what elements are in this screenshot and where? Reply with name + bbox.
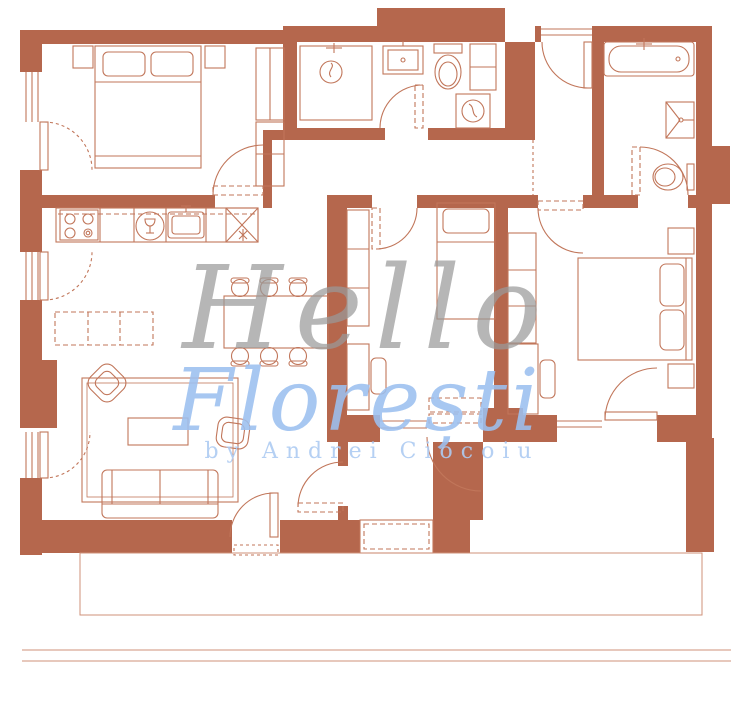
door-icon	[380, 85, 423, 128]
shower-icon	[300, 46, 372, 120]
entry-hall	[360, 520, 433, 553]
door-swing-arc	[44, 122, 92, 170]
fridge-icon	[226, 208, 258, 242]
kitchen	[56, 206, 258, 242]
nightstand-icon	[73, 46, 93, 68]
terrace	[22, 553, 731, 661]
watermark-byline: by Andrei Ciocoiu	[204, 439, 539, 464]
pillow	[151, 52, 193, 76]
sofa-icon	[102, 470, 218, 518]
window-icon	[26, 432, 90, 478]
dishwasher-icon	[136, 212, 164, 240]
bathtub-icon	[604, 38, 694, 76]
terrace-door	[605, 368, 657, 420]
door-icon	[298, 462, 343, 512]
window-icon	[26, 72, 92, 170]
washing-machine-icon	[456, 94, 490, 128]
nightstand-icon	[668, 228, 694, 254]
bathroom-1	[300, 41, 496, 128]
pillow	[443, 209, 489, 233]
washbasin-icon	[383, 41, 423, 74]
window-icon	[26, 252, 92, 300]
nightstand-icon	[668, 364, 694, 388]
pillow	[660, 310, 684, 350]
window-icon	[557, 421, 602, 427]
entrance-threshold	[360, 520, 433, 553]
watermark-line2: Florești	[171, 351, 542, 451]
entrance-door-leaf	[584, 42, 592, 88]
entry-corridor	[533, 29, 592, 195]
sideboard-icon	[55, 312, 153, 345]
toilet-icon	[653, 164, 694, 190]
pillow	[660, 264, 684, 306]
bedroom-1	[26, 46, 284, 186]
floor-plan-canvas: Hello Florești by Andrei Ciocoiu	[0, 0, 738, 720]
toilet-icon	[434, 44, 462, 89]
watermark: Hello Florești by Andrei Ciocoiu	[171, 242, 553, 464]
nightstand-icon	[205, 46, 225, 68]
terrace-icon	[80, 553, 702, 615]
pillow	[103, 52, 145, 76]
bathroom-2	[604, 38, 694, 195]
washbasin-icon	[666, 102, 694, 138]
double-bed-icon	[578, 258, 692, 360]
double-bed-icon	[95, 46, 201, 168]
kitchen-sink-icon	[168, 206, 204, 238]
door-swing-arc	[542, 42, 588, 88]
floor-plan: Hello Florești by Andrei Ciocoiu	[0, 0, 738, 720]
